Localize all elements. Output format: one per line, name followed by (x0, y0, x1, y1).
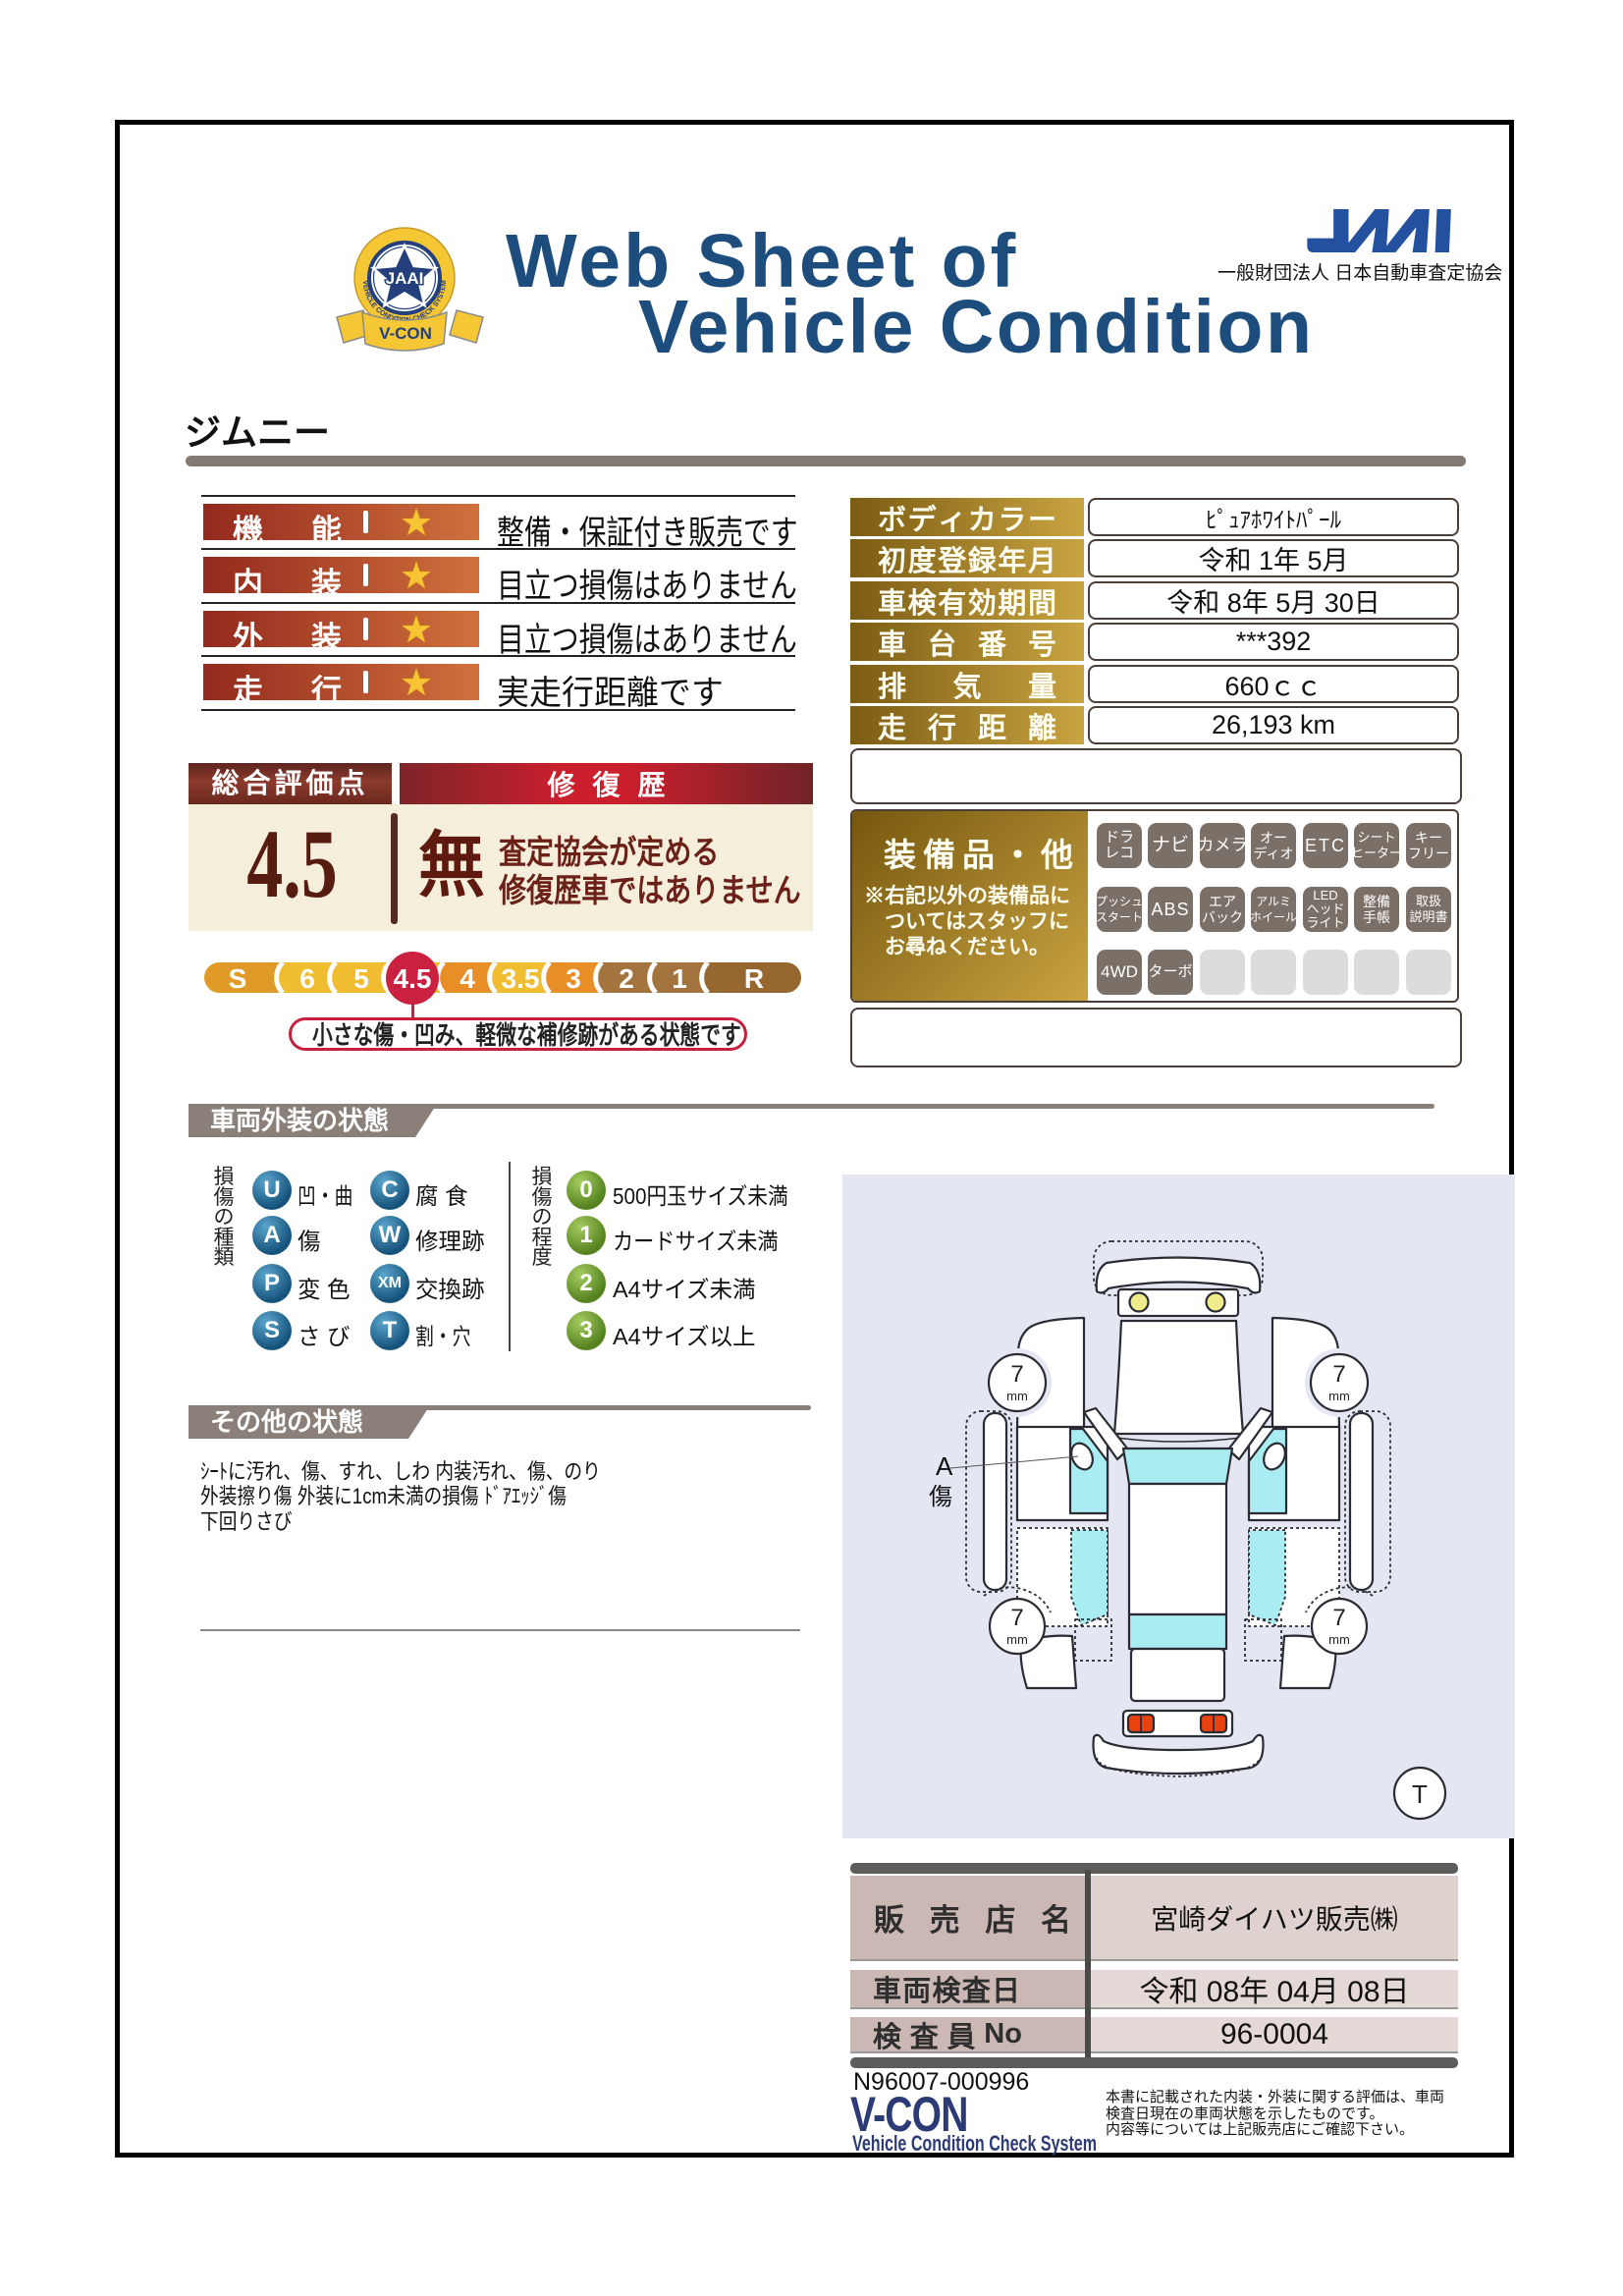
svg-text:6: 6 (299, 963, 315, 994)
svg-text:2: 2 (619, 963, 634, 994)
svg-text:S: S (229, 963, 247, 994)
svg-text:4: 4 (460, 963, 475, 994)
svg-text:7: 7 (1332, 1361, 1345, 1388)
svg-text:mm: mm (1006, 1632, 1028, 1647)
svg-text:R: R (744, 963, 764, 994)
svg-text:4.5: 4.5 (394, 963, 432, 994)
svg-text:1: 1 (672, 963, 687, 994)
svg-text:7: 7 (1332, 1605, 1345, 1631)
svg-text:3: 3 (566, 963, 581, 994)
svg-text:JAAI: JAAI (386, 269, 424, 288)
svg-text:V-CON: V-CON (379, 324, 432, 343)
svg-text:5: 5 (353, 963, 369, 994)
svg-text:3.5: 3.5 (502, 963, 540, 994)
svg-text:A: A (936, 1451, 953, 1481)
svg-text:7: 7 (1010, 1361, 1023, 1388)
svg-text:T: T (1412, 1779, 1428, 1809)
svg-text:mm: mm (1328, 1632, 1350, 1647)
svg-text:7: 7 (1010, 1605, 1023, 1631)
svg-text:mm: mm (1328, 1389, 1350, 1403)
svg-text:傷: 傷 (929, 1484, 952, 1510)
svg-text:mm: mm (1006, 1389, 1028, 1403)
